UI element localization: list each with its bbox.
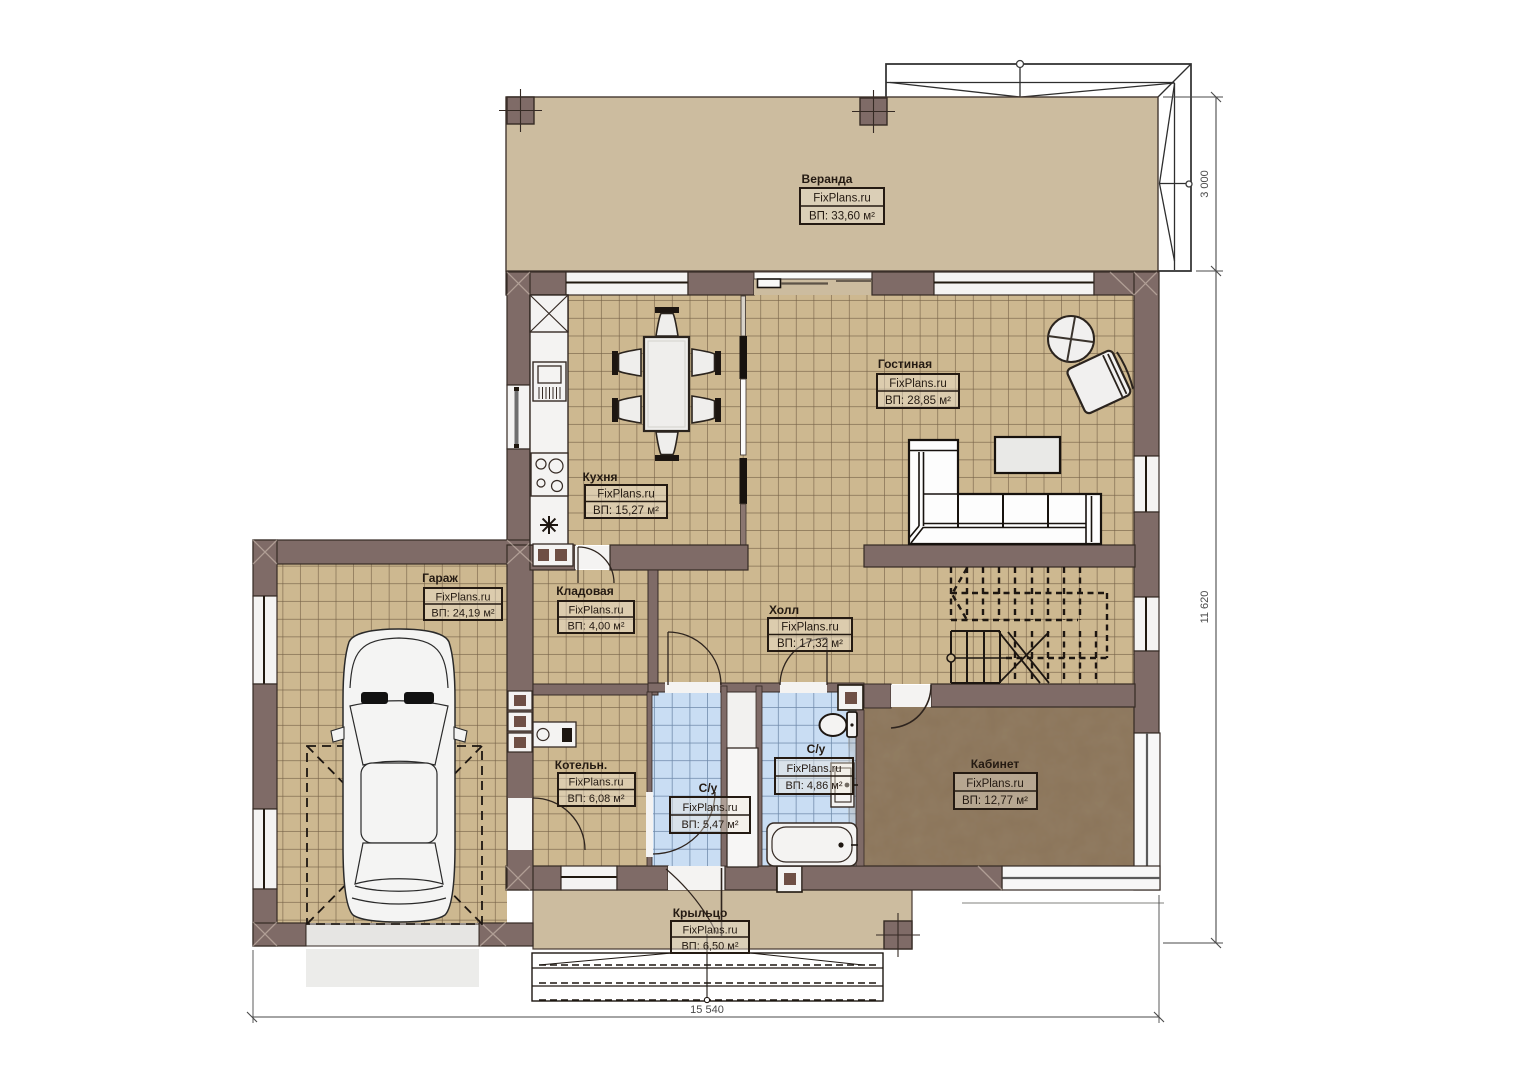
svg-text:Гараж: Гараж xyxy=(422,571,458,585)
svg-text:15 540: 15 540 xyxy=(690,1004,724,1016)
svg-text:Кладовая: Кладовая xyxy=(556,584,613,598)
svg-text:Холл: Холл xyxy=(769,603,799,617)
svg-text:Веранда: Веранда xyxy=(802,172,853,186)
svg-text:С/у: С/у xyxy=(699,781,718,795)
svg-text:ВП: 17,32 м²: ВП: 17,32 м² xyxy=(777,638,843,650)
svg-text:Гостиная: Гостиная xyxy=(878,357,932,371)
svg-text:С/у: С/у xyxy=(807,742,826,756)
svg-text:Кухня: Кухня xyxy=(582,470,617,484)
svg-text:FixPlans.ru: FixPlans.ru xyxy=(966,778,1024,790)
svg-text:FixPlans.ru: FixPlans.ru xyxy=(568,777,623,789)
svg-text:ВП: 6,50 м²: ВП: 6,50 м² xyxy=(681,941,738,953)
svg-text:ВП: 6,08 м²: ВП: 6,08 м² xyxy=(567,793,624,805)
svg-text:FixPlans.ru: FixPlans.ru xyxy=(813,193,871,205)
svg-text:FixPlans.ru: FixPlans.ru xyxy=(682,802,737,814)
svg-text:Крыльцо: Крыльцо xyxy=(673,906,728,920)
svg-text:FixPlans.ru: FixPlans.ru xyxy=(568,605,623,617)
svg-text:FixPlans.ru: FixPlans.ru xyxy=(786,763,841,775)
svg-text:ВП: 4,00 м²: ВП: 4,00 м² xyxy=(567,621,624,633)
svg-text:ВП: 4,86 м²: ВП: 4,86 м² xyxy=(785,780,842,792)
svg-text:ВП: 33,60 м²: ВП: 33,60 м² xyxy=(809,211,875,223)
svg-text:ВП: 28,85 м²: ВП: 28,85 м² xyxy=(885,395,951,407)
svg-text:FixPlans.ru: FixPlans.ru xyxy=(435,592,490,604)
svg-text:FixPlans.ru: FixPlans.ru xyxy=(597,489,655,501)
svg-text:FixPlans.ru: FixPlans.ru xyxy=(682,925,737,937)
svg-text:FixPlans.ru: FixPlans.ru xyxy=(889,378,947,390)
svg-text:FixPlans.ru: FixPlans.ru xyxy=(781,622,839,634)
svg-text:ВП: 24,19 м²: ВП: 24,19 м² xyxy=(431,608,495,620)
svg-text:Котельн.: Котельн. xyxy=(555,758,608,772)
svg-text:ВП: 5,47 м²: ВП: 5,47 м² xyxy=(681,819,738,831)
svg-text:11 620: 11 620 xyxy=(1199,591,1211,624)
svg-text:Кабинет: Кабинет xyxy=(971,757,1020,771)
svg-text:ВП: 15,27 м²: ВП: 15,27 м² xyxy=(593,505,659,517)
svg-text:ВП: 12,77 м²: ВП: 12,77 м² xyxy=(962,795,1028,807)
svg-text:3 000: 3 000 xyxy=(1199,170,1211,198)
